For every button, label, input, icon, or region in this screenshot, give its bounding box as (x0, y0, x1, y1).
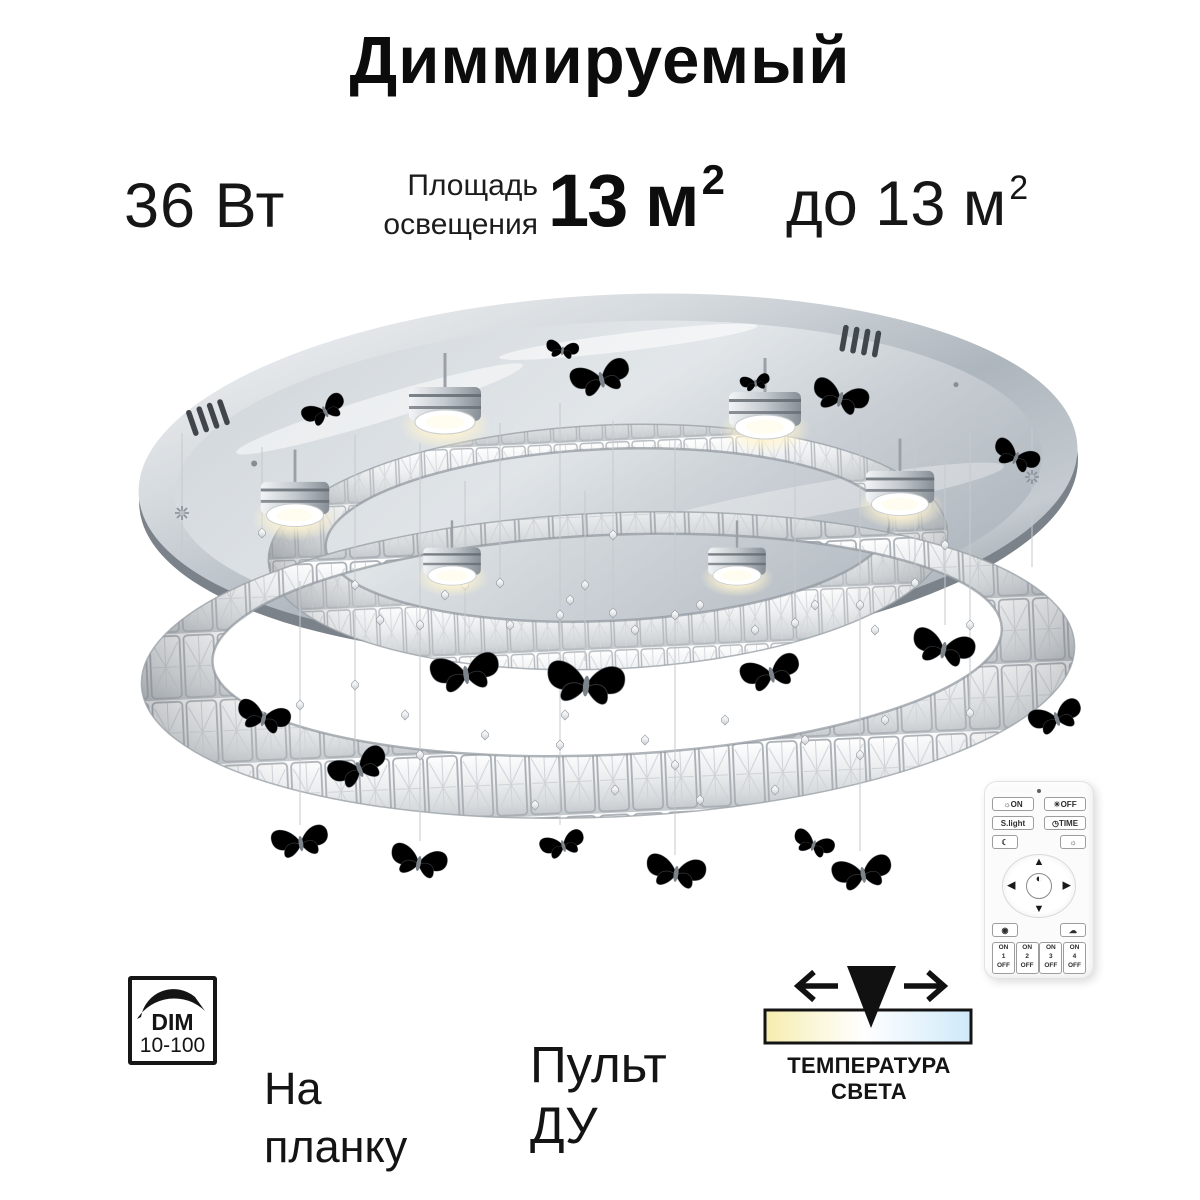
arrow-right-icon: ▶ (1063, 881, 1071, 892)
arrow-left-icon: ◀ (1007, 881, 1015, 892)
upto-area-value: до 13 м2 (786, 168, 1025, 240)
product-card: Диммируемый 36 Вт Площадь освещения 13 м… (0, 0, 1200, 1200)
remote-line1: Пульт (530, 1036, 667, 1093)
time-label: TIME (1059, 819, 1078, 828)
channel-3-button: ON 3 OFF (1039, 942, 1062, 974)
sun-filled-icon: ☀ (1053, 800, 1060, 809)
night-mode-button: ☾ (992, 835, 1018, 849)
cloud-icon: ☁ (1069, 926, 1077, 935)
channel-2-button: ON 2 OFF (1016, 942, 1039, 974)
power-on-button: ☼ON (992, 797, 1034, 811)
channel-1-button: ON 1 OFF (992, 942, 1015, 974)
remote-line2: ДУ (530, 1097, 598, 1154)
rgb-mode-button: ◉ (992, 923, 1018, 937)
arrow-down-icon: ▼ (1034, 904, 1045, 915)
arrow-left-icon (798, 972, 838, 1000)
area-label-line2: освещения (383, 208, 538, 241)
dim-badge: DIM 10-100 (128, 976, 217, 1065)
clock-icon: ◷ (1052, 819, 1059, 828)
brightness-button: ☼ (1060, 835, 1086, 849)
arrow-right-icon (904, 972, 944, 1000)
slight-label: S.light (1001, 819, 1025, 828)
dpad: ▲ ▼ ◀ ▶ ◐ (1002, 854, 1076, 918)
timer-button: ◷TIME (1044, 816, 1086, 830)
channel-4-button: ON 4 OFF (1063, 942, 1086, 974)
upto-area-superscript: 2 (1009, 169, 1028, 207)
area-value-number: 13 м (548, 159, 698, 242)
power-off-button: ☀OFF (1044, 797, 1086, 811)
temperature-widget: ТЕМПЕРАТУРА СВЕТА (762, 964, 976, 1105)
area-value-superscript: 2 (702, 156, 725, 203)
mount-line1: На (264, 1063, 322, 1114)
upto-area-number: до 13 м (786, 169, 1006, 239)
sun-outline-icon: ☼ (1003, 800, 1010, 809)
ir-led-icon (1037, 789, 1041, 793)
cloud-mode-button: ☁ (1060, 923, 1086, 937)
mount-line2: планку (264, 1121, 407, 1172)
area-label: Площадь освещения (372, 166, 538, 244)
mount-type-text: На планку (264, 1060, 407, 1176)
color-wheel-icon: ◉ (1002, 926, 1009, 935)
arrow-up-icon: ▲ (1034, 857, 1045, 868)
off-label: OFF (1061, 800, 1077, 809)
dim-label: DIM (132, 1009, 213, 1036)
dim-range: 10-100 (132, 1034, 213, 1058)
area-value: 13 м2 (548, 158, 721, 243)
remote-control: ☼ON ☀OFF S.light ◷TIME ☾ ☼ ▲ ▼ ◀ ▶ ◐ ◉ ☁… (984, 781, 1094, 979)
remote-feature-text: Пульт ДУ (530, 1034, 667, 1156)
temperature-gradient-bar (762, 964, 976, 1046)
brightness-icon: ☼ (1069, 838, 1076, 847)
moon-icon: ☾ (1001, 838, 1008, 847)
color-temp-center-button: ◐ (1026, 873, 1052, 899)
page-title: Диммируемый (0, 22, 1200, 99)
area-label-line1: Площадь (407, 169, 538, 202)
scene-light-button: S.light (992, 816, 1034, 830)
wattage-value: 36 Вт (124, 170, 285, 242)
temperature-label: ТЕМПЕРАТУРА СВЕТА (762, 1053, 976, 1105)
on-label: ON (1011, 800, 1023, 809)
chandelier-photo: .bfA .wl,.bfA .wr2{fill:url(#gWarm);} .b… (115, 285, 1090, 905)
